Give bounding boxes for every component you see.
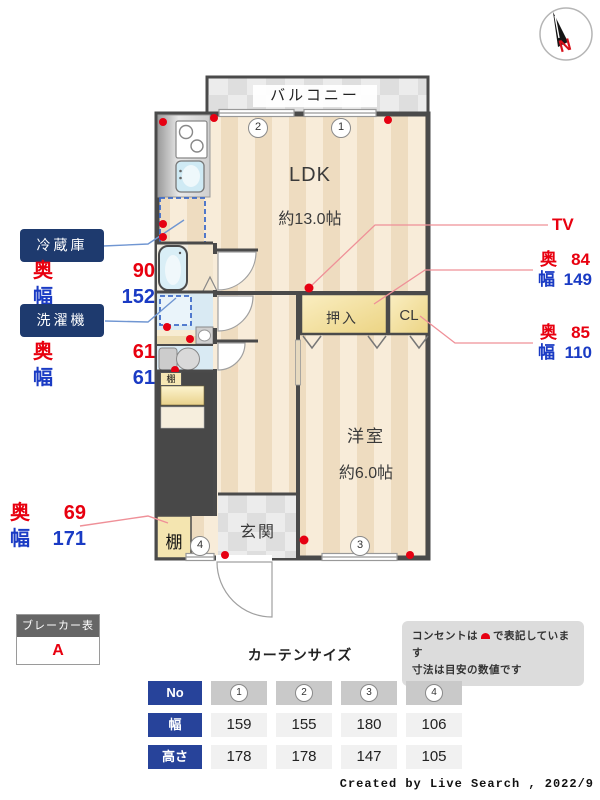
balcony-label: バルコニー (253, 85, 377, 107)
washing-machine-space (160, 296, 191, 325)
entrance-label: 玄関 (228, 518, 288, 542)
toilet-room (157, 346, 213, 371)
table-cell: 155 (276, 713, 332, 737)
outlet-dot (210, 114, 218, 122)
width-value: 152 (122, 284, 155, 310)
bathroom (157, 244, 217, 291)
table-cell: 147 (341, 745, 397, 769)
width-value: 110 (565, 342, 592, 364)
depth-label: 奥 (540, 322, 557, 344)
oshiire-depth-row: 奥 84 (540, 249, 590, 271)
depth-value: 84 (571, 249, 590, 271)
depth-label: 奥 (33, 258, 53, 284)
shelf-width-row: 幅 171 (10, 526, 86, 552)
outlet-dot (406, 551, 414, 559)
lower-shelf-label: 棚 (159, 528, 189, 553)
table-cell: 106 (406, 713, 462, 737)
window-marker-4: 4 (190, 536, 210, 556)
table-cell: 178 (211, 745, 267, 769)
depth-value: 69 (64, 500, 86, 526)
table-row-header-height: 高さ (148, 745, 202, 769)
curtain-table-title: カーテンサイズ (225, 645, 375, 665)
cl-width-row: 幅 110 (538, 342, 592, 364)
outlet-note-line: コンセントはで表記しています (412, 628, 574, 662)
width-value: 61 (133, 365, 155, 391)
washer-width-row: 幅 61 (33, 365, 155, 391)
cl-pointer-line (420, 316, 533, 343)
entrance-door-swing (217, 562, 272, 617)
washroom (157, 293, 213, 344)
shelf-depth-row: 奥 69 (10, 500, 86, 526)
window-marker-2: 2 (248, 118, 268, 138)
outlet-dot (186, 335, 194, 343)
table-col-header: 2 (276, 681, 332, 705)
depth-label: 奥 (33, 339, 53, 365)
cl-depth-row: 奥 85 (540, 322, 590, 344)
outlet-dot (300, 536, 309, 545)
shelf-box (161, 386, 204, 405)
outlet-dot (159, 220, 167, 228)
washer-tag: 洗濯機 (20, 304, 104, 337)
table-col-header: 1 (211, 681, 267, 705)
credit-line: Created by Live Search , 2022/9 (330, 777, 594, 791)
ldk-area-label: 約13.0帖 (255, 205, 365, 229)
table-cell: 178 (276, 745, 332, 769)
table-col-header: 4 (406, 681, 462, 705)
table-cell: 159 (211, 713, 267, 737)
window-marker-3: 3 (350, 536, 370, 556)
ldk-label: LDK (270, 164, 350, 187)
sliding-door (296, 340, 301, 385)
breaker-title: ブレーカー表記 (17, 615, 99, 637)
depth-value: 61 (133, 339, 155, 365)
outlet-dot (221, 551, 229, 559)
outlet-dot (305, 284, 314, 293)
width-value: 149 (564, 269, 592, 291)
outlet-dot (159, 233, 167, 241)
window-marker-1: 1 (331, 118, 351, 138)
oshiire-width-row: 幅 149 (538, 269, 592, 291)
outlet-dot (384, 116, 392, 124)
cl-label: CL (389, 307, 429, 324)
width-label: 幅 (538, 269, 555, 291)
outlet-dot (159, 118, 167, 126)
width-label: 幅 (10, 526, 30, 552)
kitchen-counter (158, 115, 210, 197)
dimension-note-line: 寸法は目安の数値です (412, 662, 574, 679)
shelf-box (161, 407, 204, 428)
floor-plan-page: バルコニー LDK 約13.0帖 押入 CL 洋室 約6.0帖 玄関 棚 棚 2… (0, 0, 600, 800)
outlet-symbol-icon (481, 633, 490, 639)
depth-label: 奥 (540, 249, 557, 271)
western-room-area-label: 約6.0帖 (316, 459, 416, 483)
legend-note: コンセントはで表記しています 寸法は目安の数値です (402, 621, 584, 686)
depth-label: 奥 (10, 500, 30, 526)
refrigerator-depth-row: 奥 90 (33, 258, 155, 284)
depth-value: 85 (571, 322, 590, 344)
table-row-header-width: 幅 (148, 713, 202, 737)
breaker-legend: ブレーカー表記 A (16, 614, 100, 665)
tv-label: TV (552, 215, 574, 235)
stove-icon (176, 121, 207, 158)
oshiire-label: 押入 (312, 308, 372, 328)
washer-depth-row: 奥 61 (33, 339, 155, 365)
table-cell: 105 (406, 745, 462, 769)
table-corner-header: No (148, 681, 202, 705)
breaker-value: A (17, 637, 99, 664)
width-label: 幅 (33, 365, 53, 391)
curtain-size-table: No 1 2 3 4 幅 159 155 180 106 高さ 178 178 … (148, 681, 462, 769)
table-col-header: 3 (341, 681, 397, 705)
outlet-dot (163, 323, 171, 331)
width-value: 171 (53, 526, 86, 552)
depth-value: 90 (133, 258, 155, 284)
western-room-label: 洋室 (326, 422, 406, 447)
width-label: 幅 (538, 342, 555, 364)
toilet-bowl-icon (177, 348, 200, 370)
table-cell: 180 (341, 713, 397, 737)
upper-shelf-label: 棚 (160, 372, 182, 386)
